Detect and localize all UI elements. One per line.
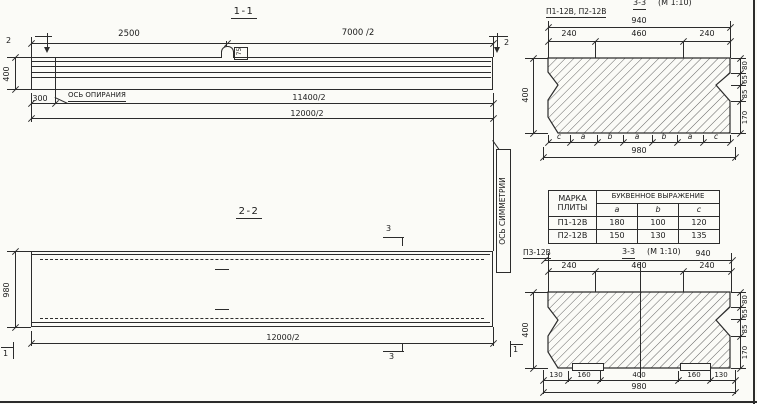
dim-line [31,103,493,104]
extension-line [623,135,624,142]
letter-values-table: МАРКА ПЛИТЫ БУКВЕННОЕ ВЫРАЖЕНИЕ a b c П1… [548,190,720,244]
extension-line [570,135,571,142]
dim-12000-half: 12000/2 [276,110,338,119]
cut-mark-line [35,36,52,37]
cut-label-2-left: 2 [6,37,11,46]
extension-line [652,135,653,142]
dim-940: 940 [624,17,654,26]
section-1-1-title: 1-1 [231,6,257,19]
table-row: П1-12В 180 100 120 [549,217,720,230]
dim-400-left: 400 [522,319,531,341]
table-cell-mark: П1-12В [549,217,597,230]
extension-line [678,371,679,382]
dim-65-right: 65 [742,73,750,86]
letter-c: c [709,133,723,141]
dim-130-right: 130 [710,372,732,380]
dim-65-right: 65 [742,307,750,320]
section-2-2-title: 2-2 [236,206,262,219]
extension-line [543,147,544,160]
cut-mark-line [489,36,508,37]
extension-line [568,371,569,382]
dim-line [31,118,493,119]
lifting-loop-icon [221,46,234,58]
dim-240-left: 240 [556,30,582,39]
cut-arrow-down-icon [44,47,50,53]
dim-170-right: 170 [742,337,750,368]
bearing-axis-label: ОСЬ ОПИРАНИЯ [68,92,126,102]
table-col-b: b [638,204,679,217]
extension-line [31,37,32,57]
table-header-mark: МАРКА ПЛИТЫ [549,191,597,217]
dim-400-bottom: 400 [625,372,653,380]
dim-line [543,392,735,393]
table-cell-b: 100 [638,217,679,230]
dim-80-right: 80 [742,58,750,73]
cut-label-1-left: 1 [3,350,8,359]
dim-2500: 2500 [105,30,153,39]
dim-line [543,157,735,158]
dim-240-right: 240 [694,262,720,271]
extension-line [548,135,549,142]
dim-400-left: 400 [522,84,531,106]
dim-line [548,41,730,42]
table-cell-c: 135 [679,230,720,244]
beam-layer-line [32,61,491,62]
letter-b: b [657,133,671,141]
cut-mark-line [402,343,403,352]
dim-460: 460 [624,262,654,271]
extension-line [525,58,548,59]
section-3-3-title: 3-3 [633,0,646,10]
dim-980: 980 [3,278,12,302]
extension-line [525,292,548,293]
cut-mark-line [13,342,14,359]
section-3-3b-scale: (М 1:10) [647,248,681,257]
extension-line [730,135,731,142]
plate-edge-line [32,254,490,255]
dim-130-left: 130 [545,372,567,380]
cut-mark-line [383,237,404,238]
cut-arrow-down-icon [494,47,500,53]
cut-label-3-bottom: 3 [389,353,394,362]
dim-tick [732,389,739,396]
cut-mark-line [497,33,498,48]
dim-line [548,27,730,28]
cut-label-3-top: 3 [386,225,391,234]
center-mark [215,309,229,310]
extension-line [525,133,548,134]
hidden-edge-dashed-line [40,259,484,260]
center-mark [215,269,229,270]
dim-85-right: 85 [742,86,750,102]
extension-line [735,147,736,160]
dim-11400-half: 11400/2 [278,94,340,103]
extension-line [7,251,31,252]
cut-mark-line [47,33,48,48]
letter-a: a [683,133,697,141]
section-3-3-scale: (М 1:10) [658,0,692,8]
table-cell-c: 120 [679,217,720,230]
dim-980-bottom: 980 [624,147,654,156]
sheet-frame-bottom [0,401,757,403]
extension-line [677,135,678,142]
letter-a: a [630,133,644,141]
extension-line [7,327,31,328]
letter-a: a [576,133,590,141]
extension-line [597,135,598,142]
cross-section-hatched [543,55,737,137]
table-cell-a: 180 [597,217,638,230]
plates-label: П1-12В, П2-12В [546,8,606,18]
extension-line [525,368,548,369]
plate-edge-line [32,322,490,323]
dim-980-bottom: 980 [624,383,654,392]
letter-c: c [552,133,566,141]
table-col-a: a [597,204,638,217]
cut-label-1-right: 1 [513,346,518,355]
dim-460: 460 [624,30,654,39]
hidden-edge-dashed-line [40,318,484,319]
dim-line [533,58,534,133]
section-3-3b-title: 3-3 [622,248,635,259]
loop-tag: 75 [237,47,244,56]
dim-line [31,343,493,344]
table-row: П2-12В 150 130 135 [549,230,720,244]
dim-80-right: 80 [742,292,750,307]
dim-160-left: 160 [573,372,595,380]
dim-7000-half: 7000 /2 [330,29,386,38]
beam-layer-line [32,77,491,78]
sheet-frame-right [753,0,755,404]
extension-line [703,135,704,142]
extension-line [7,89,31,90]
plate-outline [31,251,493,327]
dim-400: 400 [3,64,12,84]
cross-section-hatched [543,289,737,373]
extension-line [7,57,31,58]
dim-240-left: 240 [556,262,582,271]
dim-line [31,43,493,44]
dim-line [15,57,16,90]
table-cell-mark: П2-12В [549,230,597,244]
dim-170-right: 170 [742,102,750,133]
bottom-recess [572,363,604,371]
dim-line [15,251,16,327]
letter-b: b [603,133,617,141]
table-header-expression: БУКВЕННОЕ ВЫРАЖЕНИЕ [597,191,720,204]
extension-line [600,371,601,382]
cut-mark-line [402,237,403,246]
dim-12000-half-plan: 12000/2 [252,334,314,343]
table-cell-a: 150 [597,230,638,244]
symmetry-axis-label: ОСЬ СИММЕТРИИ [496,149,511,273]
dim-line [533,292,534,368]
beam-layer-line [32,66,491,67]
beam-layer-line [32,72,491,73]
dim-85-right: 85 [742,321,750,337]
cut-label-2-right: 2 [504,39,509,48]
dim-160-right: 160 [683,372,705,380]
dim-940: 940 [689,250,717,259]
table-col-c: c [679,204,720,217]
dim-240-right: 240 [694,30,720,39]
dim-line [543,380,735,381]
drawing-sheet: 1-1 2500 7000 /2 2 2 75 400 300 ОСЬ ОПИР… [0,0,757,404]
bottom-recess [680,363,711,371]
table-cell-b: 130 [638,230,679,244]
